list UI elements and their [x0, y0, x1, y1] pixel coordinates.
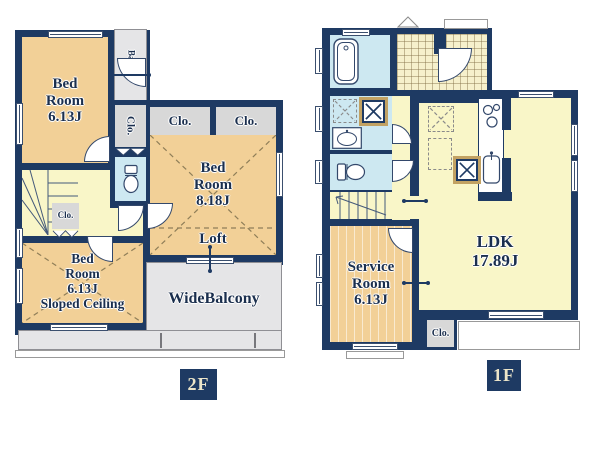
f1-underfloor-storage-x [458, 161, 476, 179]
f1-porch-step [444, 19, 488, 29]
f1-toilet-icon [336, 160, 366, 184]
f1-floor-tag: 1F [487, 360, 521, 391]
f1-porch-gable-icon [397, 15, 419, 28]
floor-plan-page: { "colors": { "wall": "#1e3a63", "room_t… [0, 0, 600, 449]
f1-terrace [458, 321, 580, 350]
f1-kitchen-wall-stub-base [478, 192, 512, 201]
f1-opening-marker-service [404, 282, 428, 284]
f1-window-ldk-bottom [488, 311, 544, 319]
f1-stove-icon [481, 102, 502, 132]
f1-window-service-left-1 [316, 254, 323, 278]
f1-window-service-bottom [352, 343, 398, 350]
f1-kitchen-sink-icon [481, 150, 502, 188]
f1-floor-tag-text: 1F [493, 365, 515, 386]
f1-opening-marker-hall [404, 200, 426, 202]
f1-vanity-sink-icon [332, 127, 362, 149]
f1-window-service-left-2 [316, 282, 323, 306]
f1-stairs [330, 192, 392, 219]
f1-window-ldk-right-2 [571, 160, 578, 192]
f1-window-service-sill [346, 351, 404, 359]
f1-laundry-space-mark [333, 99, 357, 123]
f1-kitchen-wall-stub-top [502, 98, 511, 130]
f1-window-ldk-right-1 [571, 124, 578, 156]
f1-window-washroom-left [315, 106, 323, 132]
f1-bathtub-icon [333, 38, 359, 85]
f1-refrigerator-x-icon [429, 107, 453, 131]
f1-underfloor-storage-icon [456, 159, 478, 181]
floor-plan-canvas: Balcony Bed Room 6.13J Clo. [0, 0, 600, 449]
f1-laundry-space-x-icon [334, 100, 356, 122]
f1-cupboard-space-mark [428, 138, 452, 170]
f1-closet-label: Clo. [432, 328, 450, 339]
f1-washing-machine-icon [362, 100, 385, 123]
f1-refrigerator-space-mark [428, 106, 454, 132]
f1-window-bath-top [342, 29, 370, 36]
f1-closet: Clo. [427, 320, 454, 347]
f1-window-ldk-top [518, 91, 554, 98]
floor-plan-1f: LDK 17.89J Service Room 6.13J Clo. 1F [0, 0, 600, 449]
f1-window-toilet-left [315, 160, 323, 184]
f1-window-bath-left [315, 48, 323, 74]
f1-washing-machine-x [364, 102, 383, 121]
